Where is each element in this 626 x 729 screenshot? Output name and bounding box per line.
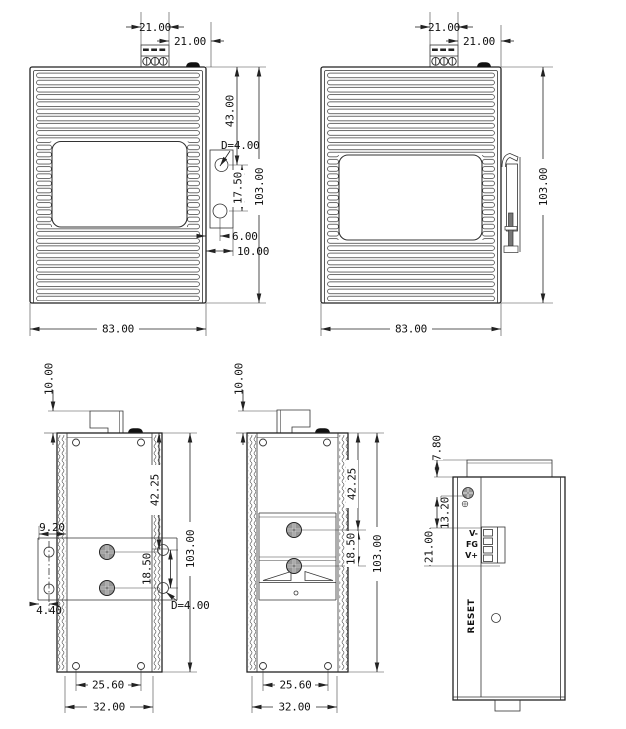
clip-wedge (305, 572, 333, 581)
dim-terminal-tab: 10.00 (43, 363, 56, 395)
corner-hole (138, 663, 145, 670)
terminal-tab (277, 410, 310, 433)
dim-hole-span: 25.60 (279, 679, 311, 692)
reset-label: RESET (467, 598, 477, 633)
dim-terminal-tab: 10.00 (233, 363, 246, 395)
label-recess (339, 155, 482, 240)
mounting-hole (213, 204, 227, 218)
top-view: V- FG V+ RESET 7.80 13.20 21.00 (423, 435, 566, 711)
terminal-label-fg: FG (466, 540, 478, 549)
dim-hole-pitch: 17.50 (232, 172, 245, 204)
label-recess (52, 142, 187, 228)
dim-upper-screw: 42.25 (346, 468, 359, 500)
din-rail-clip (502, 154, 520, 253)
terminal-cell (484, 547, 493, 554)
heatsink-fins (327, 155, 339, 240)
dim-height: 103.00 (537, 168, 550, 207)
mounting-hole (215, 159, 228, 172)
dim-upper-hole: 42.25 (149, 474, 162, 506)
dim-screw-pitch: 18.50 (345, 533, 358, 565)
dim-width: 83.00 (102, 323, 134, 336)
dim-hole-inset: 6.00 (232, 230, 258, 243)
dim-terminal-offset: 21.00 (463, 35, 495, 48)
corner-hole (325, 663, 332, 670)
corner-hole (73, 439, 80, 446)
device-body (453, 477, 565, 700)
dim-ground-screw-offset: 13.20 (439, 497, 452, 529)
terminal-cell (484, 555, 493, 562)
terminal-cell (484, 538, 493, 545)
mounting-flange (210, 150, 233, 228)
front-view-din-clip: 21.00 21.00 103.00 83.00 (321, 12, 553, 336)
power-terminal-block: V- FG V+ (465, 527, 505, 563)
heatsink-fins (36, 142, 52, 228)
phillips-screw (100, 581, 115, 596)
din-clip-top (315, 428, 330, 433)
heatsink-fins (327, 72, 495, 155)
heatsink-body (321, 67, 501, 303)
terminal-cell (484, 530, 493, 537)
corner-hole (324, 439, 331, 446)
corner-hole (138, 439, 145, 446)
side-view-din-mount: 10.00 42.25 18.50 103.00 25.60 32.00 (233, 363, 385, 714)
terminal-block (430, 45, 458, 67)
front-view-mounting-holes: 21.00 21.00 43.00 103.00 17.50 D=4.00 6.… (30, 12, 269, 336)
clip-pin-hole (294, 591, 298, 595)
heatsink-fins (187, 142, 200, 228)
dim-terminal-width: 21.00 (428, 21, 460, 34)
fin-hatch (58, 435, 66, 670)
heatsink-fins (482, 155, 495, 240)
corner-hole (260, 663, 267, 670)
dim-height: 103.00 (184, 530, 197, 569)
din-clip-top (186, 62, 200, 67)
dim-flange-offset: 10.00 (237, 245, 269, 258)
phillips-screw (100, 545, 115, 560)
dimension-lines (236, 390, 384, 713)
bottom-tab (495, 700, 520, 711)
heatsink-fins (36, 227, 200, 301)
dim-terminal-offset: 21.00 (174, 35, 206, 48)
heatsink-body (30, 67, 206, 303)
din-clip-top (477, 62, 491, 67)
dim-terminal-height: 21.00 (423, 531, 436, 563)
fin-hatch (248, 435, 256, 670)
corner-hole (73, 663, 80, 670)
terminal-block (141, 45, 169, 67)
corner-hole (260, 439, 267, 446)
din-clip-assembly (259, 513, 336, 600)
terminal-label-vplus: V+ (465, 551, 478, 560)
phillips-screw (287, 559, 302, 574)
terminal-tab (90, 411, 123, 433)
dim-hole-edge-offset: 4.40 (36, 604, 62, 617)
dim-hole-from-top: 43.00 (224, 95, 237, 127)
side-view-wall-mount: 10.00 42.25 103.00 9.20 4.40 18.50 D=4.0… (31, 363, 210, 714)
device-body (247, 433, 348, 672)
ground-screw (463, 488, 474, 499)
dim-height: 103.00 (253, 168, 266, 207)
top-lip (467, 460, 552, 477)
heatsink-fins (36, 72, 200, 142)
dim-hole-diameter: D=4.00 (221, 139, 260, 152)
ground-symbol (462, 501, 468, 507)
terminal-label-vminus: V- (469, 529, 478, 538)
dim-height: 103.00 (371, 535, 384, 574)
dim-hole-diameter: D=4.00 (171, 599, 210, 612)
dim-depth: 32.00 (278, 701, 310, 714)
dim-width: 83.00 (395, 323, 427, 336)
dim-hole-pitch: 18.50 (141, 553, 154, 585)
heatsink-fins (327, 240, 495, 301)
dim-terminal-width: 21.00 (139, 21, 171, 34)
reset-button-hole (492, 614, 501, 623)
dim-hole-span: 25.60 (92, 679, 124, 692)
dim-lip: 7.80 (431, 435, 444, 461)
din-clip-top (128, 428, 143, 433)
clip-wedge (263, 572, 291, 581)
dim-plate-overhang: 9.20 (39, 521, 65, 534)
phillips-screw (287, 523, 302, 538)
dimensional-drawing-sheet: 21.00 21.00 43.00 103.00 17.50 D=4.00 6.… (0, 0, 626, 729)
dim-depth: 32.00 (93, 701, 125, 714)
